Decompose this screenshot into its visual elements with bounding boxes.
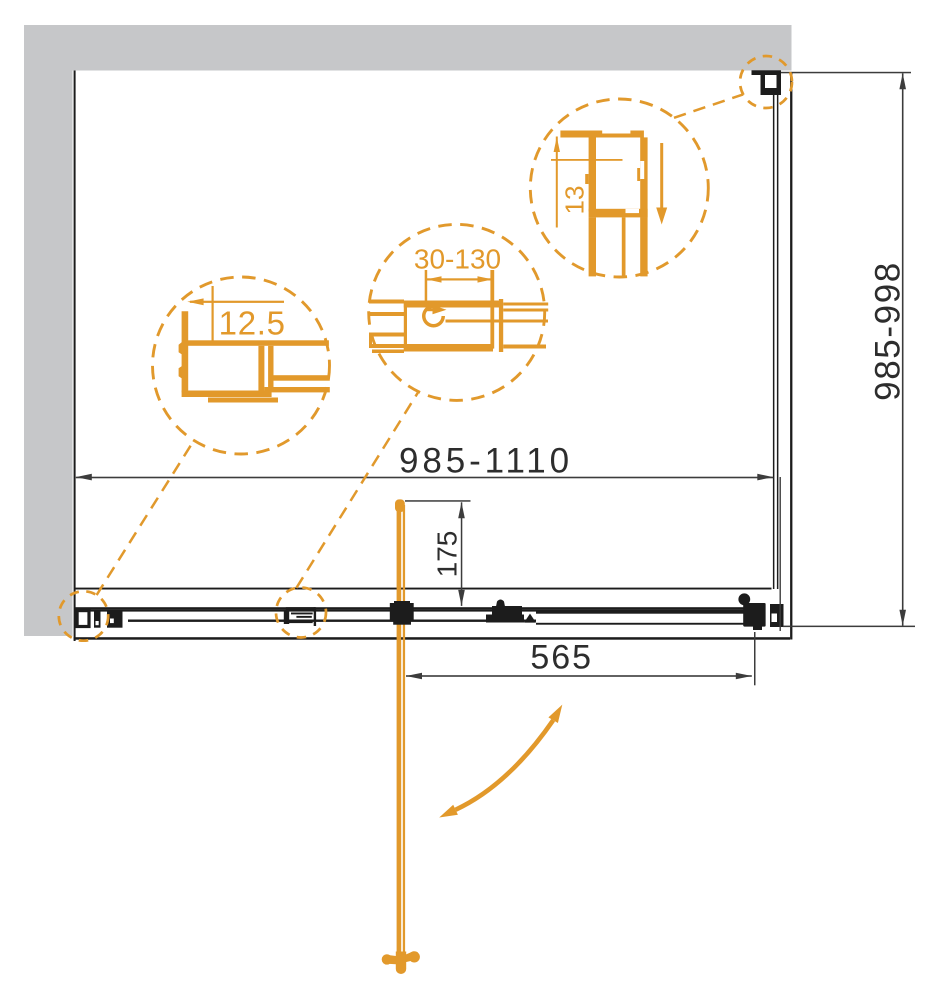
svg-text:175: 175 — [432, 531, 463, 578]
svg-text:12.5: 12.5 — [219, 304, 286, 341]
svg-text:565: 565 — [530, 638, 593, 676]
svg-text:13: 13 — [560, 186, 590, 215]
svg-text:30-130: 30-130 — [414, 244, 501, 275]
svg-text:985-998: 985-998 — [869, 261, 908, 401]
svg-text:985-1110: 985-1110 — [399, 442, 573, 481]
